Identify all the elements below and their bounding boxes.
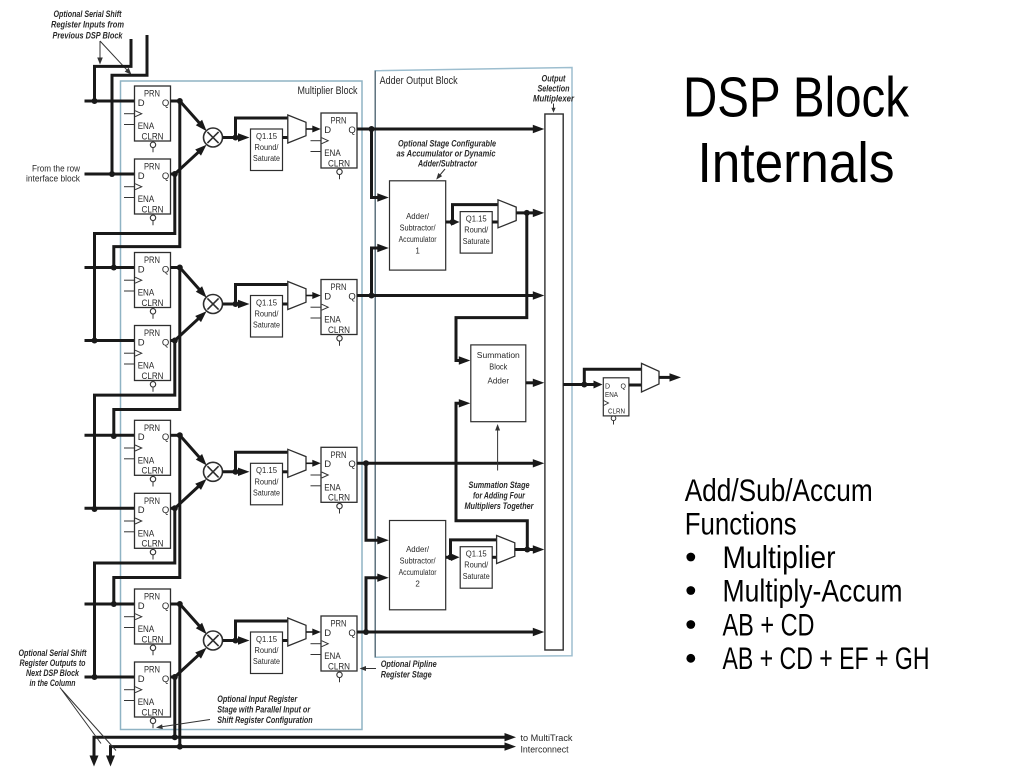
svg-text:Register Stage: Register Stage — [381, 669, 432, 679]
svg-text:Optional Serial Shift: Optional Serial Shift — [54, 9, 123, 19]
svg-text:Multiplexer: Multiplexer — [533, 93, 574, 103]
svg-text:CLRN: CLRN — [608, 408, 625, 415]
svg-text:Stage with Parallel Input or: Stage with Parallel Input or — [217, 705, 311, 715]
svg-text:Adder: Adder — [488, 377, 510, 386]
svg-text:Optional Input Register: Optional Input Register — [217, 694, 298, 704]
svg-text:Subtractor/: Subtractor/ — [400, 224, 437, 233]
svg-text:From the row: From the row — [32, 164, 80, 174]
svg-text:Shift Register Configuration: Shift Register Configuration — [217, 715, 313, 725]
svg-text:Output: Output — [542, 73, 567, 83]
svg-text:AB + CD: AB + CD — [723, 606, 815, 642]
svg-text:interface block: interface block — [26, 173, 80, 183]
svg-text:Next DSP Block: Next DSP Block — [26, 668, 80, 678]
svg-text:Add/Sub/Accum: Add/Sub/Accum — [685, 472, 873, 508]
svg-text:Selection: Selection — [538, 83, 570, 93]
svg-text:2: 2 — [415, 580, 420, 589]
svg-text:Multipliers Together: Multipliers Together — [465, 501, 535, 511]
svg-text:as Accumulator or Dynamic: as Accumulator or Dynamic — [397, 148, 497, 158]
svg-text:Register Inputs from: Register Inputs from — [51, 20, 124, 30]
svg-text:Multiplier: Multiplier — [723, 539, 836, 575]
svg-text:Multiplier Block: Multiplier Block — [298, 85, 358, 97]
svg-text:to MultiTrack: to MultiTrack — [521, 733, 573, 743]
svg-text:Optional Pipline: Optional Pipline — [381, 659, 437, 669]
svg-text:D: D — [605, 383, 610, 390]
svg-text:Optional Serial Shift: Optional Serial Shift — [19, 648, 88, 658]
svg-text:in the Column: in the Column — [30, 678, 76, 688]
svg-text:Accumulator: Accumulator — [399, 568, 437, 577]
svg-text:Accumulator: Accumulator — [399, 235, 437, 244]
svg-text:Adder/Subtractor: Adder/Subtractor — [417, 159, 478, 169]
svg-text:Adder Output Block: Adder Output Block — [380, 75, 458, 87]
svg-text:Summation: Summation — [477, 351, 520, 360]
svg-text:for Adding Four: for Adding Four — [473, 491, 526, 501]
svg-text:DSP Block: DSP Block — [683, 66, 909, 130]
svg-text:Q: Q — [621, 383, 627, 390]
svg-text:1: 1 — [415, 247, 420, 256]
svg-text:Register Outputs to: Register Outputs to — [20, 658, 86, 668]
svg-text:Subtractor/: Subtractor/ — [400, 557, 437, 566]
svg-text:Functions: Functions — [685, 506, 797, 542]
svg-text:Interconnect: Interconnect — [521, 744, 569, 754]
svg-text:Adder/: Adder/ — [406, 545, 430, 554]
svg-text:Adder/: Adder/ — [406, 212, 430, 221]
svg-text:Optional Stage Configurable: Optional Stage Configurable — [398, 138, 496, 148]
svg-text:Previous DSP Block: Previous DSP Block — [53, 31, 124, 41]
svg-text:Block: Block — [489, 362, 508, 371]
svg-text:Summation Stage: Summation Stage — [469, 480, 530, 490]
svg-text:Multiply-Accum: Multiply-Accum — [723, 573, 903, 609]
svg-text:Internals: Internals — [698, 131, 895, 195]
svg-text:ENA: ENA — [605, 392, 618, 399]
svg-text:AB + CD + EF + GH: AB + CD + EF + GH — [723, 640, 930, 676]
